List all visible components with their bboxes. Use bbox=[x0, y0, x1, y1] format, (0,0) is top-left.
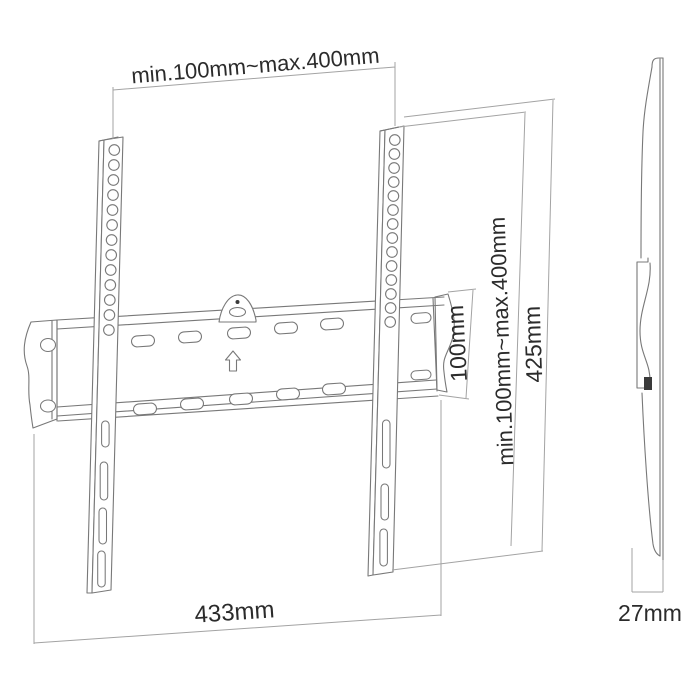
technical-drawing: min.100mm~max.400mm 100mm min.100mm~max.… bbox=[0, 0, 700, 700]
plate-slot bbox=[411, 312, 432, 323]
bracket-spacer bbox=[644, 377, 652, 390]
plate-slot bbox=[227, 327, 251, 340]
hook-tab-pin bbox=[236, 300, 240, 304]
plate-slot bbox=[322, 383, 346, 396]
wall-rail-lines bbox=[660, 58, 663, 560]
profile-top-cap bbox=[652, 58, 663, 67]
endcap-slot bbox=[41, 400, 56, 412]
plate-slot bbox=[180, 398, 204, 411]
dim-total-height-label: 425mm bbox=[519, 305, 548, 383]
profile-upper bbox=[641, 67, 652, 258]
plate-slot bbox=[274, 322, 298, 335]
dim-depth-label: 27mm bbox=[618, 600, 682, 626]
front-view: min.100mm~max.400mm 100mm min.100mm~max.… bbox=[24, 43, 555, 644]
side-view: 27mm bbox=[618, 58, 682, 626]
dim-depth: 27mm bbox=[618, 548, 682, 626]
dim-plate-height-label: 100mm bbox=[442, 304, 472, 382]
dim-vesa-height-label: min.100mm~max.400mm bbox=[485, 216, 519, 466]
dim-top-width-label: min.100mm~max.400mm bbox=[130, 43, 380, 89]
bracket-curve bbox=[640, 263, 650, 384]
plate-slot bbox=[276, 388, 300, 401]
hook-tab-slot bbox=[230, 308, 246, 317]
bracket-section bbox=[637, 258, 648, 388]
dim-bottom-width-label: 433mm bbox=[194, 596, 276, 629]
plate-slot bbox=[131, 335, 155, 348]
diagram-canvas: min.100mm~max.400mm 100mm min.100mm~max.… bbox=[0, 0, 700, 700]
plate-slot bbox=[411, 370, 432, 380]
dim-top-width: min.100mm~max.400mm bbox=[113, 43, 395, 139]
plate-slot bbox=[229, 393, 253, 406]
hook-tab bbox=[219, 295, 256, 322]
plate-slot bbox=[178, 331, 202, 344]
side-profile bbox=[637, 58, 663, 560]
plate-slot bbox=[133, 403, 157, 416]
endcap-slot bbox=[41, 339, 56, 352]
plate-slot bbox=[320, 318, 344, 331]
profile-lower bbox=[642, 393, 660, 556]
